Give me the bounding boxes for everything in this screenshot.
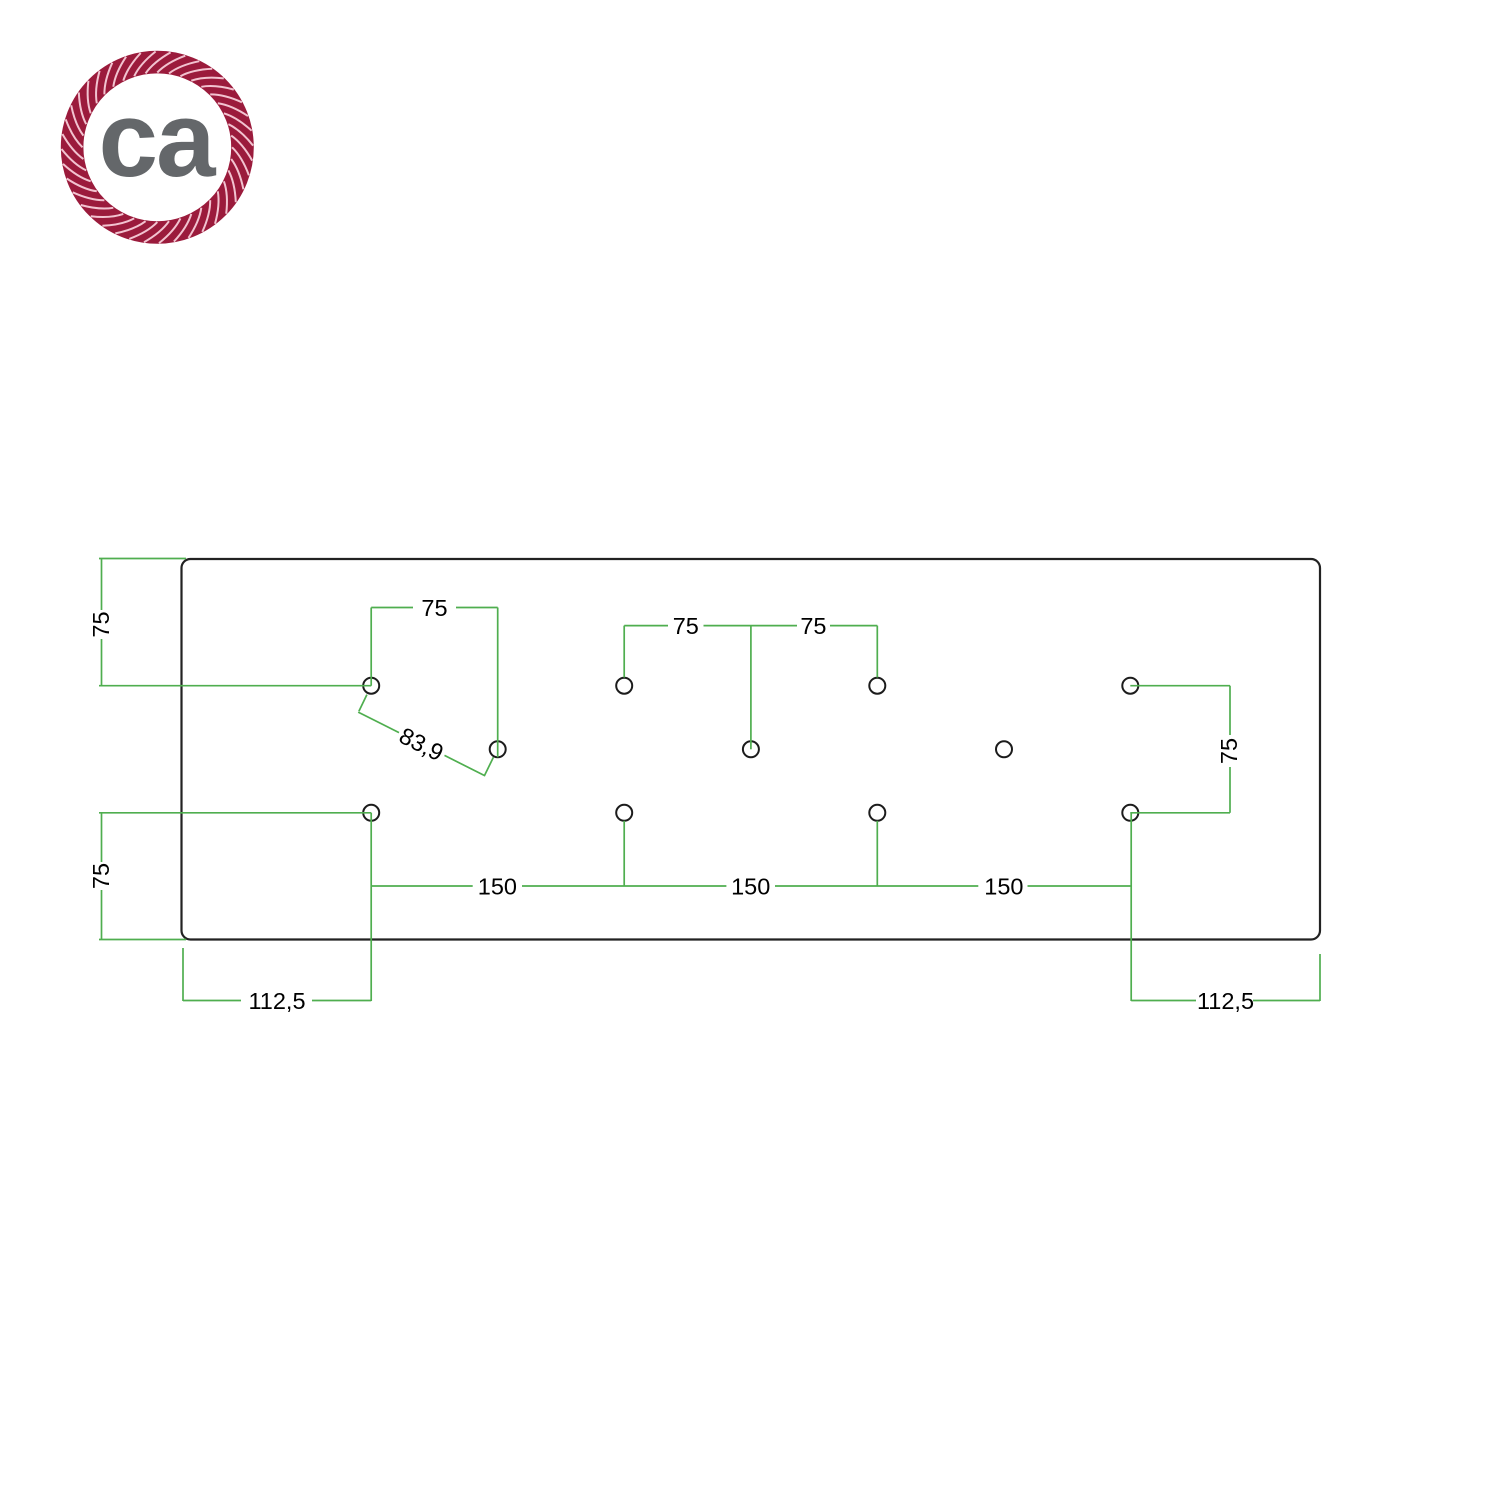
svg-text:75: 75 [673, 613, 699, 639]
svg-text:75: 75 [88, 611, 114, 637]
svg-text:ca: ca [98, 79, 217, 199]
svg-text:112,5: 112,5 [1197, 988, 1254, 1014]
svg-text:150: 150 [478, 874, 517, 900]
svg-text:112,5: 112,5 [248, 988, 305, 1014]
svg-text:150: 150 [731, 874, 770, 900]
svg-text:75: 75 [88, 863, 114, 889]
svg-text:75: 75 [421, 595, 447, 621]
svg-text:150: 150 [984, 874, 1023, 900]
svg-text:75: 75 [800, 613, 826, 639]
svg-text:75: 75 [1216, 738, 1242, 764]
